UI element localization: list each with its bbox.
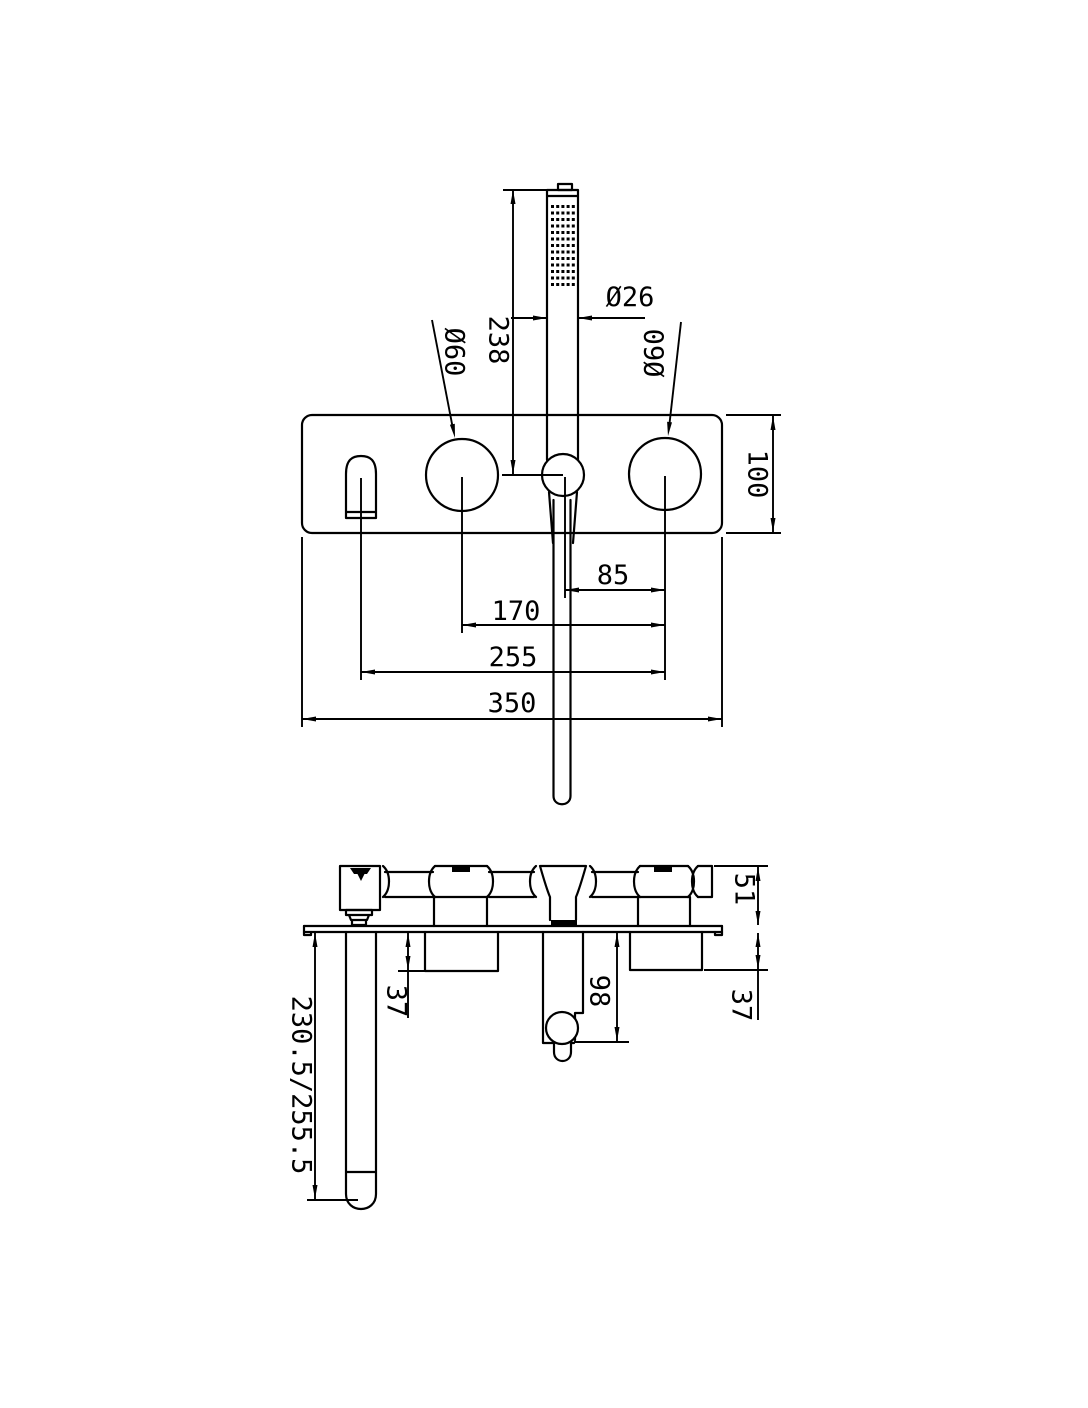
right-handle-notch [654,866,672,872]
dim-right-valve-projection-label: 37 [726,989,757,1022]
dim-plate-height-label: 100 [742,450,773,499]
dim-shower-elbow-projection-label: 98 [584,975,615,1008]
side-body-row [340,866,712,926]
dim-shower-diameter-label: Ø26 [606,282,655,313]
side-view [304,866,722,1209]
left-valve-side [425,932,498,971]
dim-plate-width-label: 350 [488,688,537,719]
dimension-annotations: 238 Ø26 Ø60 Ø60 100 85 170 255 350 [286,190,782,1200]
hand-shower-front [547,184,578,460]
technical-drawing-page: 238 Ø26 Ø60 Ø60 100 85 170 255 350 [0,0,1088,1408]
holder-funnel-side [540,866,586,926]
spray-dots [551,205,575,286]
right-valve-side [630,932,702,970]
dim-shower-height-label: 238 [483,316,514,365]
dim-left-valve-projection-label: 37 [381,985,412,1018]
dim-left-handle-diameter-label: Ø60 [439,328,470,377]
dim-handle-spacing-label: 170 [492,596,541,627]
wall-plate-side [304,926,722,935]
spout-aerator-side [346,910,372,925]
dim-spout-projection-label: 230.5/255.5 [286,996,317,1175]
connector-sections [385,872,638,897]
dim-right-handle-diameter-label: Ø60 [640,329,671,378]
mixer-technical-drawing: 238 Ø26 Ø60 Ø60 100 85 170 255 350 [0,0,1088,1408]
spout-tube-side [346,932,376,1209]
spout-tap-mark [350,868,371,881]
left-handle-notch [452,866,470,872]
shower-wand-front [549,492,577,804]
dim-spout-to-handle-label: 255 [489,642,538,673]
dim-holder-to-handle-label: 85 [597,560,630,591]
end-box-side [698,866,712,897]
dim-body-depth-label: 51 [729,873,760,906]
hook-ball-side [546,1012,578,1044]
side-projections [346,932,702,1209]
